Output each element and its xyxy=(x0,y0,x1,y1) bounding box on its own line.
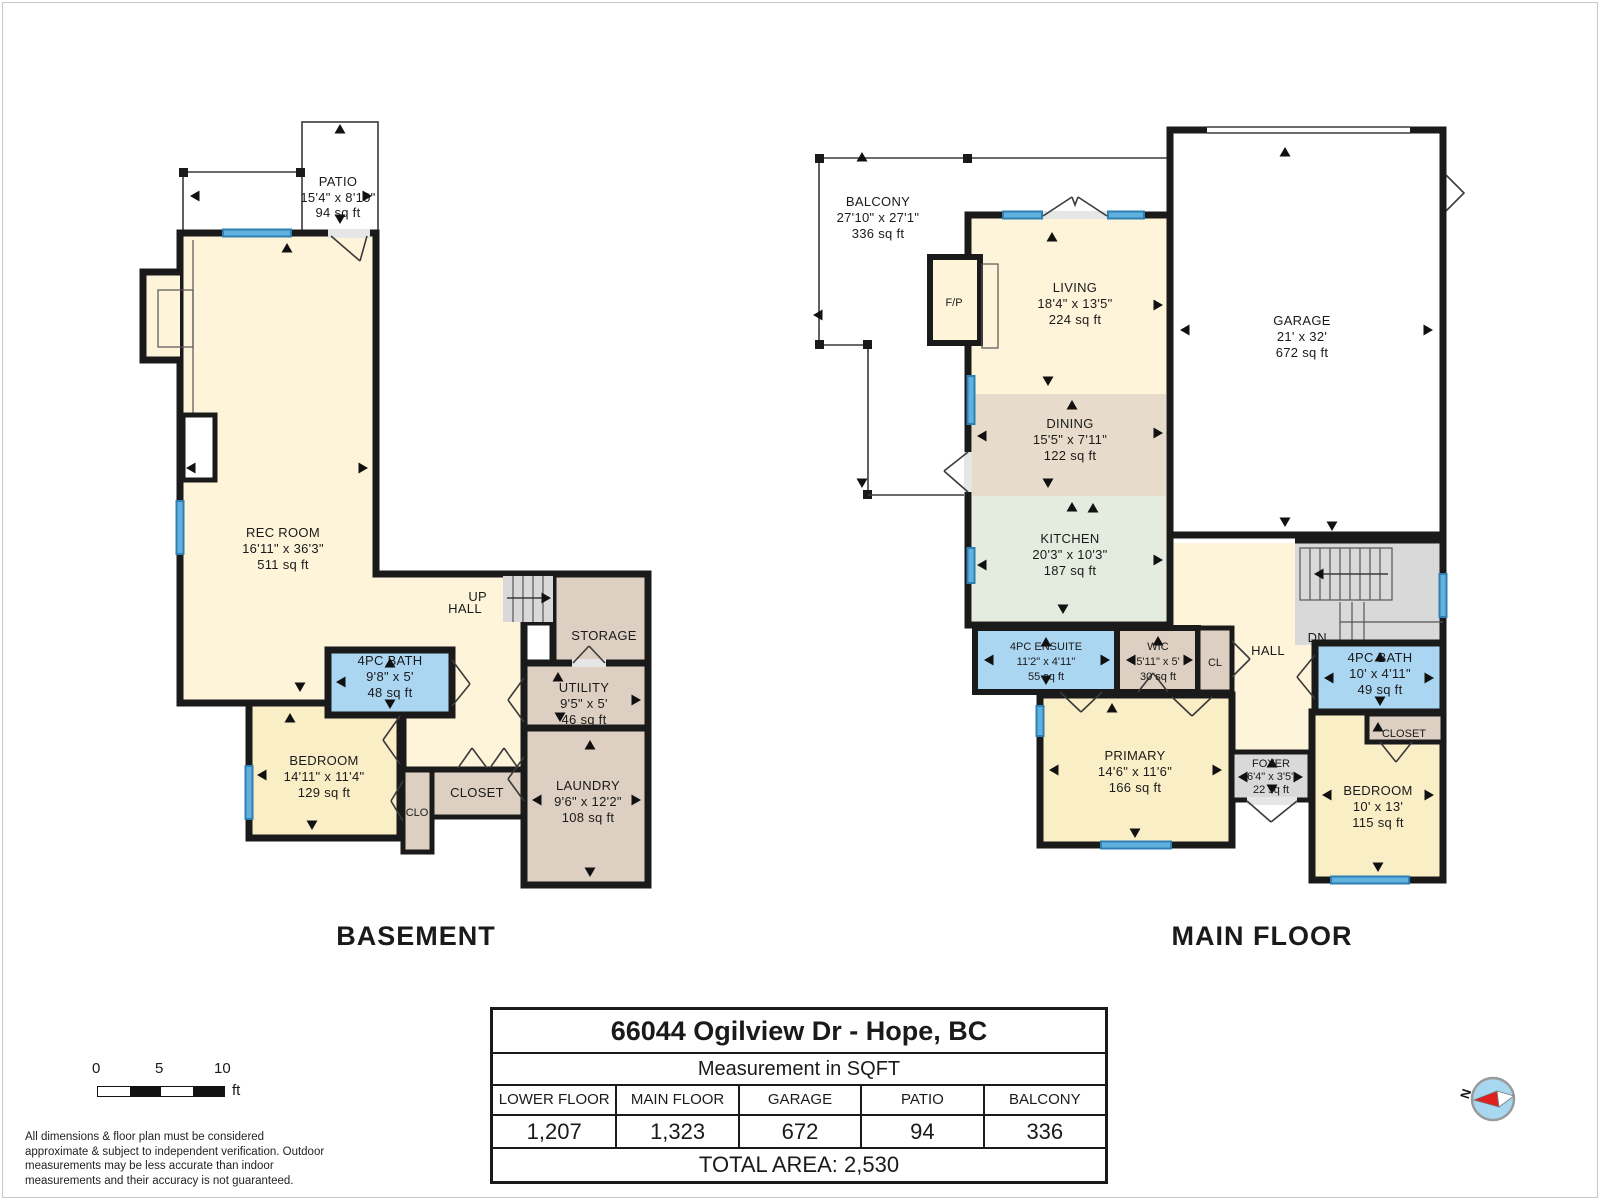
room-dims-bedroom-main: 10' x 13' xyxy=(1353,799,1403,814)
room-dims-bath-main: 10' x 4'11" xyxy=(1349,666,1411,681)
summary-table: 66044 Ogilview Dr - Hope, BC Measurement… xyxy=(490,1007,1108,1184)
room-dims-laundry: 9'6" x 12'2" xyxy=(554,794,622,809)
garage-door xyxy=(1207,124,1410,135)
room-label-cl: CL xyxy=(1208,657,1222,669)
room-area-utility: 46 sq ft xyxy=(561,712,606,727)
room-dims-primary: 14'6" x 11'6" xyxy=(1098,764,1172,779)
compass-icon: N xyxy=(1457,1078,1514,1120)
room-label-bedroom-basement: BEDROOM xyxy=(289,753,358,768)
table-values-row: 1,207 1,323 672 94 336 xyxy=(493,1114,1105,1147)
room-label-kitchen: KITCHEN xyxy=(1040,531,1099,546)
room-label-patio: PATIO xyxy=(319,174,358,189)
room-label-garage: GARAGE xyxy=(1273,313,1330,328)
main-floor-plan: BALCONY 27'10" x 27'1" 336 sq ft F/P LIV… xyxy=(815,124,1464,951)
value-patio: 94 xyxy=(860,1116,982,1147)
col-header-lower-floor: LOWER FLOOR xyxy=(493,1086,615,1114)
address-title: 66044 Ogilview Dr - Hope, BC xyxy=(493,1010,1105,1052)
room-area-bedroom-main: 115 sq ft xyxy=(1352,815,1404,830)
floorplan-page: PATIO 15'4" x 8'10" 94 sq ft REC ROOM 16… xyxy=(0,0,1600,1200)
room-label-laundry: LAUNDRY xyxy=(556,778,620,793)
room-area-wic: 30 sq ft xyxy=(1140,671,1176,683)
room-dims-living: 18'4" x 13'5" xyxy=(1037,296,1112,311)
room-dims-ensuite: 11'2" x 4'11" xyxy=(1017,656,1076,668)
room-area-living: 224 sq ft xyxy=(1049,312,1102,327)
scale-bar-segments xyxy=(97,1086,225,1097)
col-header-balcony: BALCONY xyxy=(983,1086,1105,1114)
window-well xyxy=(183,415,215,480)
room-label-closet-main: CLOSET xyxy=(1382,728,1426,740)
scale-unit: ft xyxy=(232,1082,240,1099)
scale-bar: 0 5 10 ft xyxy=(90,1060,260,1102)
basement-title: BASEMENT xyxy=(336,921,496,951)
room-label-balcony: BALCONY xyxy=(846,194,910,209)
stairs-up xyxy=(503,576,553,622)
col-header-main-floor: MAIN FLOOR xyxy=(615,1086,737,1114)
room-label-primary: PRIMARY xyxy=(1104,748,1165,763)
room-label-rec-room: REC ROOM xyxy=(246,525,320,540)
room-dims-bedroom-basement: 14'11" x 11'4" xyxy=(284,769,365,784)
total-area: TOTAL AREA: 2,530 xyxy=(493,1147,1105,1181)
room-dims-foyer: 6'4" x 3'5" xyxy=(1247,771,1295,783)
scale-tick-5: 5 xyxy=(155,1060,163,1077)
room-label-bedroom-main: BEDROOM xyxy=(1343,783,1412,798)
room-area-rec-room: 511 sq ft xyxy=(257,557,309,572)
room-label-hall-main: HALL xyxy=(1251,643,1285,658)
col-header-garage: GARAGE xyxy=(738,1086,860,1114)
compass-north-label: N xyxy=(1457,1087,1474,1101)
value-garage: 672 xyxy=(738,1116,860,1147)
room-label-utility: UTILITY xyxy=(559,680,610,695)
room-area-garage: 672 sq ft xyxy=(1276,345,1329,360)
room-area-laundry: 108 sq ft xyxy=(562,810,615,825)
room-label-fp: F/P xyxy=(945,297,962,309)
garage-side-door xyxy=(1446,175,1464,211)
room-area-bath-basement: 48 sq ft xyxy=(367,685,412,700)
room-label-dining: DINING xyxy=(1046,416,1093,431)
table-header-row: LOWER FLOOR MAIN FLOOR GARAGE PATIO BALC… xyxy=(493,1084,1105,1114)
room-label-closet-basement: CLOSET xyxy=(450,785,504,800)
room-dims-bath-basement: 9'8" x 5' xyxy=(366,669,414,684)
stairs-up-label: UP xyxy=(468,589,487,604)
room-area-bath-main: 49 sq ft xyxy=(1357,682,1402,697)
room-label-storage: STORAGE xyxy=(571,628,636,643)
value-balcony: 336 xyxy=(983,1116,1105,1147)
room-area-dining: 122 sq ft xyxy=(1044,448,1097,463)
room-dims-rec-room: 16'11" x 36'3" xyxy=(242,541,324,556)
room-area-balcony: 336 sq ft xyxy=(852,226,905,241)
room-label-living: LIVING xyxy=(1053,280,1097,295)
room-dims-garage: 21' x 32' xyxy=(1277,329,1327,344)
room-dims-dining: 15'5" x 7'11" xyxy=(1033,432,1107,447)
room-label-clo: CLO xyxy=(406,807,429,819)
stairs-dn-label: DN xyxy=(1308,630,1327,645)
room-dims-wic: 5'11" x 5' xyxy=(1136,656,1179,668)
room-area-primary: 166 sq ft xyxy=(1109,780,1162,795)
col-header-patio: PATIO xyxy=(860,1086,982,1114)
scale-tick-10: 10 xyxy=(214,1060,231,1077)
room-storage xyxy=(553,574,648,663)
main-floor-title: MAIN FLOOR xyxy=(1172,921,1353,951)
room-area-bedroom-basement: 129 sq ft xyxy=(298,785,351,800)
room-dims-balcony: 27'10" x 27'1" xyxy=(837,210,920,225)
room-dims-kitchen: 20'3" x 10'3" xyxy=(1032,547,1107,562)
disclaimer-text: All dimensions & floor plan must be cons… xyxy=(25,1130,325,1189)
basement-plan: PATIO 15'4" x 8'10" 94 sq ft REC ROOM 16… xyxy=(143,122,648,951)
value-lower-floor: 1,207 xyxy=(493,1116,615,1147)
room-area-kitchen: 187 sq ft xyxy=(1044,563,1097,578)
value-main-floor: 1,323 xyxy=(615,1116,737,1147)
scale-tick-0: 0 xyxy=(92,1060,100,1077)
table-subtitle: Measurement in SQFT xyxy=(493,1052,1105,1084)
room-dims-utility: 9'5" x 5' xyxy=(560,696,608,711)
